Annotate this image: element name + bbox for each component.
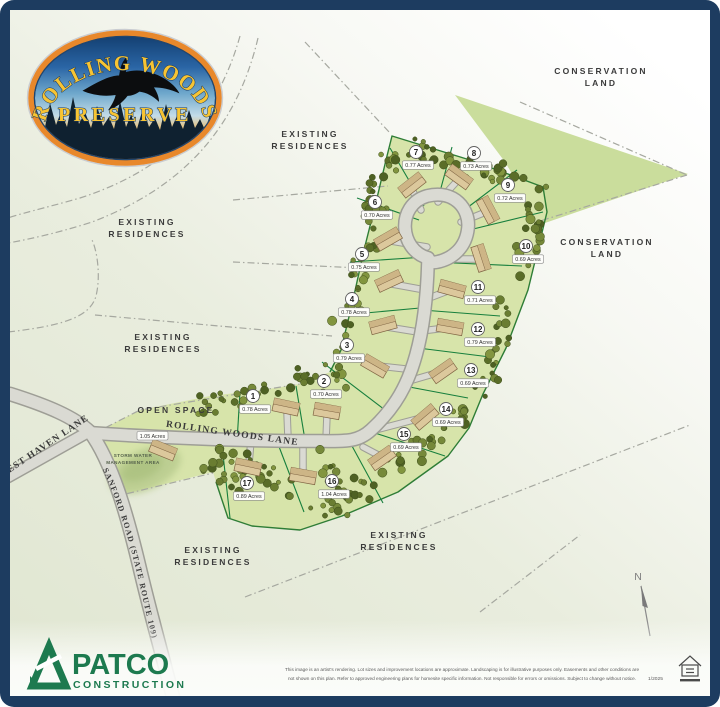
lot-number: 6 xyxy=(373,198,378,207)
lot-number: 17 xyxy=(243,479,252,488)
tree xyxy=(531,224,540,233)
tree xyxy=(229,459,234,464)
lot-acreage: 0.73 Acres xyxy=(463,164,489,170)
tree xyxy=(366,495,374,503)
tree xyxy=(526,215,535,224)
tree xyxy=(525,207,530,212)
footer-disclaimer-line1: This image is an artist's rendering. Lot… xyxy=(285,667,640,672)
tree xyxy=(342,384,349,391)
lot-acreage: 0.69 Acres xyxy=(460,381,486,387)
tree xyxy=(536,220,541,225)
tree xyxy=(505,310,511,316)
tree xyxy=(318,469,327,478)
tree xyxy=(231,398,238,405)
tree xyxy=(361,480,367,486)
lot-number: 11 xyxy=(474,283,483,292)
lot-number: 3 xyxy=(345,341,350,350)
tree xyxy=(234,391,241,398)
tree xyxy=(347,321,354,328)
lot-acreage: 0.71 Acres xyxy=(467,298,493,304)
tree xyxy=(490,362,495,367)
tree xyxy=(275,390,281,396)
tree xyxy=(322,513,327,518)
tree xyxy=(345,512,351,518)
tree xyxy=(485,350,494,359)
lot-acreage: 0.70 Acres xyxy=(364,213,390,219)
lot-number: 5 xyxy=(360,250,365,259)
tree xyxy=(196,392,203,399)
tree xyxy=(309,506,313,510)
tree xyxy=(342,332,349,339)
tree xyxy=(293,373,300,380)
tree xyxy=(219,396,224,401)
lot-acreage: 0.78 Acres xyxy=(341,310,367,316)
tree xyxy=(522,225,529,232)
area-label: OPEN SPACE xyxy=(137,405,214,415)
tree xyxy=(398,466,406,474)
patco-division: CONSTRUCTION xyxy=(73,679,186,691)
north-label: N xyxy=(634,571,642,583)
tree xyxy=(370,189,375,194)
tree xyxy=(267,471,273,477)
tree xyxy=(386,163,392,169)
tree xyxy=(327,316,336,325)
footer-disclaimer-line2: not shown on this plan. Refer to approve… xyxy=(288,676,636,681)
lot-number: 12 xyxy=(474,325,483,334)
lot-acreage: 0.79 Acres xyxy=(336,356,362,362)
tree xyxy=(504,306,508,310)
tree xyxy=(208,458,217,467)
open-space-acreage-chip: 1.05 Acres xyxy=(137,432,168,441)
lot-acreage: 0.72 Acres xyxy=(497,196,523,202)
tree xyxy=(496,296,505,305)
tree xyxy=(229,449,238,458)
tree xyxy=(499,160,507,168)
tree xyxy=(216,478,223,485)
tree xyxy=(301,379,308,386)
lot-acreage: 0.69 Acres xyxy=(515,257,541,263)
tree xyxy=(494,376,502,384)
tree xyxy=(370,482,377,489)
tree xyxy=(393,168,399,174)
tree xyxy=(329,507,334,512)
tree xyxy=(286,493,293,500)
site-plan-poster: ROLLING WOODS LANE WEST HAVEN LANE SANFO… xyxy=(0,0,720,707)
tree xyxy=(371,226,377,232)
tree xyxy=(262,464,267,469)
tree xyxy=(534,202,543,211)
tree xyxy=(427,442,435,450)
tree xyxy=(333,372,339,378)
tree xyxy=(335,363,343,371)
tree xyxy=(240,397,248,405)
tree xyxy=(243,450,251,458)
tree xyxy=(220,452,227,459)
lot-acreage: 1.04 Acres xyxy=(321,492,347,498)
tree xyxy=(218,391,223,396)
tree xyxy=(271,466,276,471)
footer-date: 1/2025 xyxy=(648,676,663,682)
lot-acreage: 0.69 Acres xyxy=(393,445,419,451)
lot-acreage: 0.78 Acres xyxy=(242,407,268,413)
lot-acreage: 0.89 Acres xyxy=(236,494,262,500)
map-canvas: ROLLING WOODS LANE WEST HAVEN LANE SANFO… xyxy=(0,0,720,707)
tree xyxy=(516,272,525,281)
tree xyxy=(328,464,333,469)
tree xyxy=(505,341,511,347)
tree xyxy=(417,456,426,465)
tree xyxy=(295,365,301,371)
lot-number: 14 xyxy=(442,405,451,414)
tree xyxy=(228,484,234,490)
tree xyxy=(501,319,510,328)
tree xyxy=(379,173,388,182)
tree xyxy=(430,147,436,153)
tree xyxy=(506,335,512,341)
tree xyxy=(276,480,280,484)
tree xyxy=(397,457,405,465)
lot-acreage: 0.70 Acres xyxy=(313,392,339,398)
tree xyxy=(391,155,400,164)
lot-number: 10 xyxy=(522,242,531,251)
tree xyxy=(427,436,433,442)
tree xyxy=(200,464,208,472)
tree xyxy=(316,445,325,454)
tree xyxy=(543,184,549,190)
lot-number: 9 xyxy=(506,181,511,190)
open-space-chip-text: 1.05 Acres xyxy=(140,434,166,440)
tree xyxy=(534,245,541,252)
lot-number: 2 xyxy=(322,377,327,386)
tree xyxy=(483,394,488,399)
tree xyxy=(413,137,417,141)
tree xyxy=(323,362,328,367)
rolling-woods-preserve-logo: ROLLING WOODS PRESERVE xyxy=(27,30,223,167)
tree xyxy=(233,476,240,483)
lot-number: 15 xyxy=(400,430,409,439)
tree xyxy=(350,474,358,482)
tree xyxy=(369,174,375,180)
tree xyxy=(378,468,387,477)
tree xyxy=(357,492,362,497)
lot-acreage: 0.79 Acres xyxy=(467,340,493,346)
tree xyxy=(334,507,342,515)
tree xyxy=(321,503,326,508)
tree xyxy=(424,144,429,149)
lot-number: 8 xyxy=(472,149,477,158)
tree xyxy=(335,378,340,383)
tree xyxy=(356,285,361,290)
tree xyxy=(359,276,367,284)
tree xyxy=(520,174,528,182)
lot-number: 1 xyxy=(251,392,256,401)
lot-number: 4 xyxy=(350,295,355,304)
tree xyxy=(351,258,356,263)
tree xyxy=(535,185,543,193)
tree xyxy=(481,173,486,178)
lot-acreage: 0.69 Acres xyxy=(435,420,461,426)
tree xyxy=(421,139,426,144)
tree xyxy=(438,437,445,444)
tree xyxy=(348,272,354,278)
lot-acreage: 0.75 Acres xyxy=(351,265,377,271)
tree xyxy=(490,179,495,184)
lot-number: 16 xyxy=(328,477,337,486)
logo-name-text: PRESERVE xyxy=(58,104,192,126)
tree xyxy=(460,408,467,415)
lot-acreage: 0.77 Acres xyxy=(405,163,431,169)
tree xyxy=(329,499,336,506)
storm-water-label-line2: MANAGEMENT AREA xyxy=(106,460,160,465)
storm-water-label-line1: STORM WATER xyxy=(114,453,153,458)
tree xyxy=(261,386,269,394)
tree xyxy=(211,393,217,399)
patco-name: PATCO xyxy=(72,649,169,681)
tree xyxy=(379,152,384,157)
tree xyxy=(286,384,295,393)
tree xyxy=(221,471,226,476)
lot-number: 13 xyxy=(467,366,476,375)
lot-number: 7 xyxy=(414,148,419,157)
